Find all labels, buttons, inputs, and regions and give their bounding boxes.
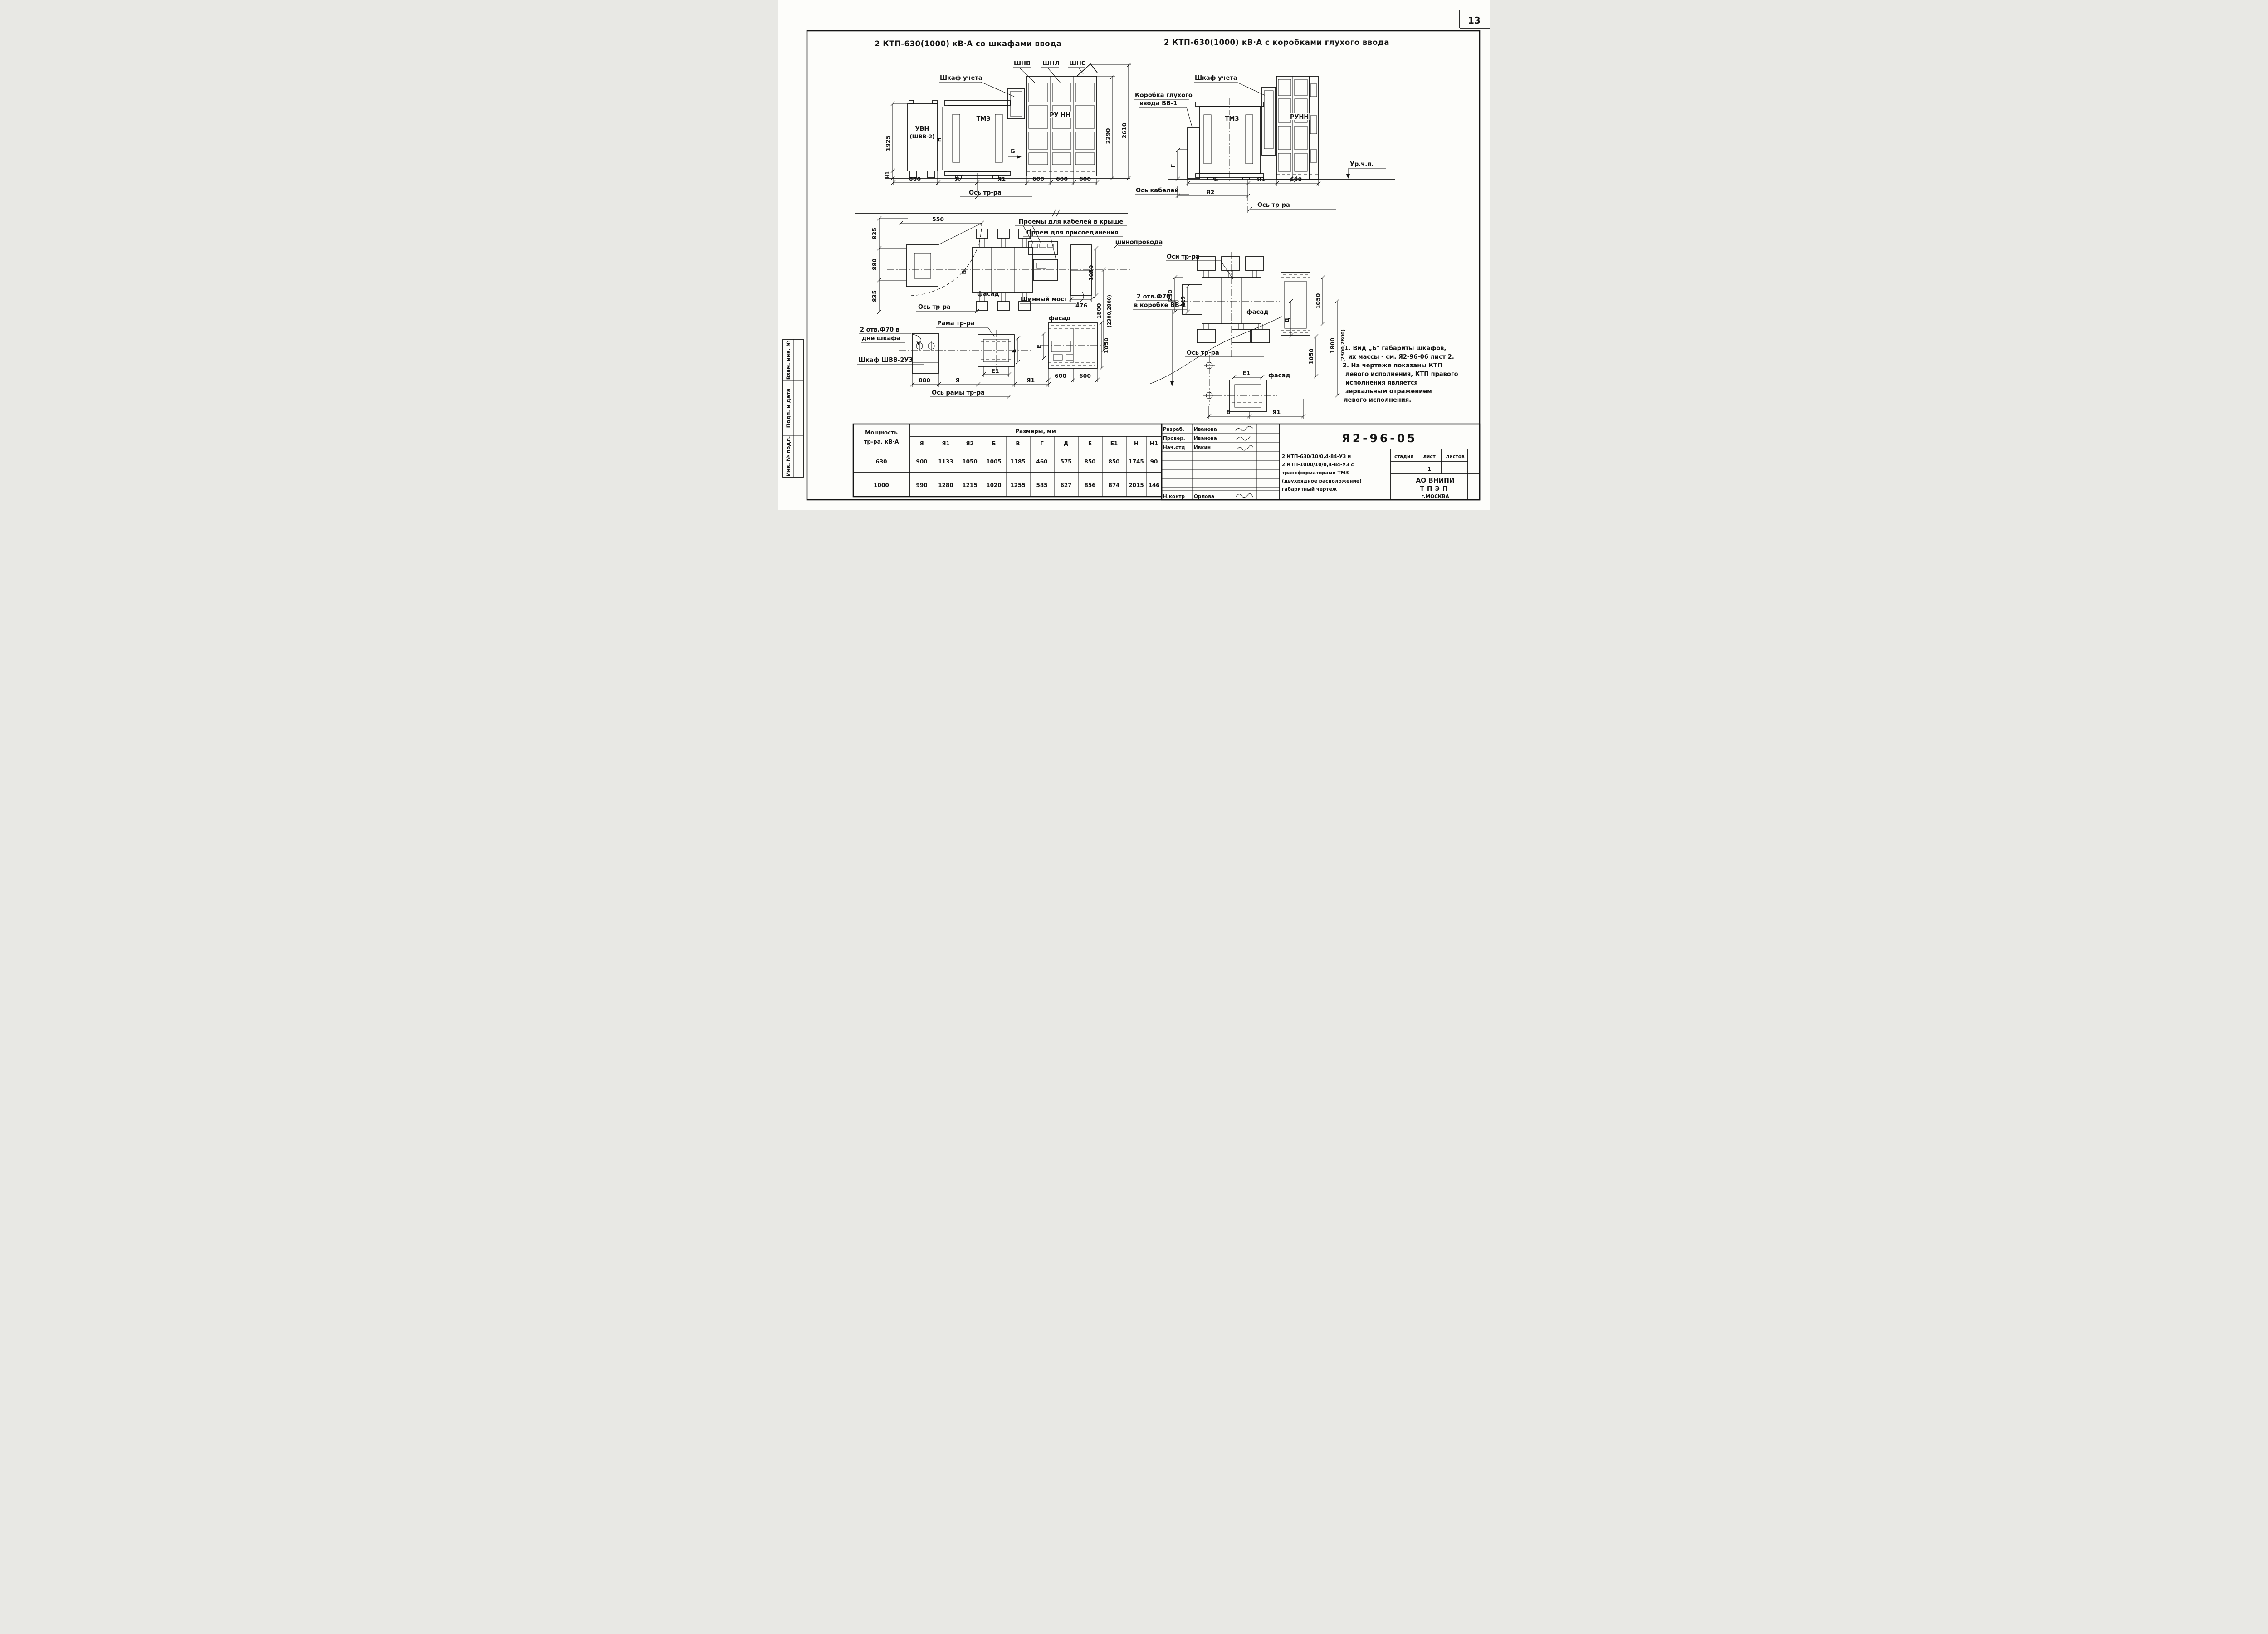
doc-desc-4: (двухрядное расположение) (1282, 478, 1362, 484)
doc-desc-1: 2 КТП-630/10/0,4-84-У3 и (1282, 454, 1351, 459)
dim-ya-elev: Я (955, 176, 959, 182)
drawing-canvas: 13 Взам. инв. № Подп. и дата Инв. № подл… (778, 0, 1490, 510)
runn-doors-left (1029, 83, 1095, 165)
note-line-5: исполнения является (1345, 380, 1418, 386)
note-line-3: 2. На чертеже показаны КТП (1343, 362, 1442, 369)
signatures (1236, 426, 1253, 498)
bus-bridge-label: Шинный мост (1021, 296, 1068, 303)
roof-cable-slots (1031, 244, 1053, 248)
dim-ya1-right-detail: Я1 (1272, 409, 1281, 415)
doc-desc-2: 2 КТП-1000/10/0,4-84-У3 с (1282, 462, 1354, 468)
col-ya1: Я1 (942, 440, 950, 447)
col-h1: Н1 (1150, 440, 1158, 447)
doc-desc-3: трансформаторами ТМЗ (1282, 470, 1349, 476)
holes-vv1-label-2: в коробке ВВ-1 (1134, 302, 1186, 309)
sheet-frame: 13 (807, 10, 1490, 500)
left-plan: 835 880 835 550 В Проемы для к (855, 210, 1163, 352)
dim-e: Е (1010, 349, 1017, 353)
radiator-stubs-top-right-plan (1197, 257, 1264, 278)
right-plan: Оси тр-ра 230 115 фасад Д 2 отв.Ф70 в ко… (1133, 181, 1346, 419)
row2-v4: 1255 (1010, 482, 1025, 488)
col-b: Б (992, 440, 996, 447)
busduct-opening-label-2: шинопровода (1115, 239, 1163, 246)
row2-v2: 1215 (962, 482, 977, 488)
holes-label-1: 2 отв.Ф70 в (860, 327, 899, 333)
roof-openings-label: Проемы для кабелей в крыше (1019, 219, 1124, 225)
title-block: Я2-96-05 Разраб. Иванова Провер. Иванова… (1162, 424, 1480, 500)
dim-ya2: Я2 (1206, 189, 1214, 195)
dim-v-letter: В (961, 270, 968, 274)
row2-v8: 874 (1108, 482, 1119, 488)
stamp-field-podp: Подп. и дата (785, 389, 792, 428)
fasad-label-left-plan: фасад (977, 291, 999, 298)
dim-880-elev: 880 (909, 176, 921, 182)
doc-desc-5: габаритный чертеж (1282, 487, 1337, 492)
row2-v10: 146 (1148, 482, 1159, 488)
panel-front-view: фасад 600 600 1050 Е (1036, 315, 1110, 382)
right-elevation: Коробка глухого ввода ВВ-1 ТМЗ Шкаф учет… (1134, 75, 1395, 211)
axis-transformer-left-elev: Ось тр-ра (969, 190, 1002, 196)
fasad-label-right-detail: фасад (1268, 372, 1290, 379)
dim-600-panel-2: 600 (1079, 372, 1091, 379)
tmz-label-left: ТМЗ (976, 116, 990, 122)
name-nkontr: Орлова (1194, 494, 1214, 499)
row1-v2: 1050 (962, 458, 977, 465)
sheet-header: лист (1423, 454, 1436, 459)
radiator-stubs-top-left-plan (976, 229, 1031, 247)
dim-1800-left: 1800 (1095, 303, 1102, 319)
dim-600-panel-1: 600 (1055, 372, 1066, 379)
shkaf-shvv-label: Шкаф ШВВ-2УЗ (858, 357, 913, 364)
shnl-label: ШНЛ (1042, 60, 1060, 67)
col-e: Е (1088, 440, 1092, 447)
role-razrab: Разраб. (1163, 427, 1184, 432)
dim-1925: 1925 (885, 136, 891, 151)
shnv-label: ШНВ (1014, 60, 1031, 67)
dim-2290: 2290 (1105, 128, 1111, 144)
dim-b-detail: Б (1226, 409, 1231, 415)
stamp-strip: Взам. инв. № Подп. и дата Инв. № подл. (783, 339, 803, 477)
uvn-label: УВН (915, 126, 929, 132)
org-name-2: ТПЭП (1420, 485, 1450, 493)
section-b-letter: Б (1011, 148, 1015, 155)
name-nachotd: Ивкин (1194, 445, 1211, 450)
row1-v4: 1185 (1010, 458, 1025, 465)
stamp-field-vzam: Взам. инв. № (785, 341, 792, 380)
row1-v3: 1005 (986, 458, 1001, 465)
row2-v0: 990 (916, 482, 927, 488)
dim-1800-right: 1800 (1329, 337, 1336, 353)
name-prover: Иванова (1194, 436, 1217, 441)
fasad-label-right-plan: фасад (1246, 309, 1269, 316)
dim-ya1-elev: Я1 (997, 176, 1006, 182)
dim-ya1-detail: Я1 (1026, 377, 1035, 384)
col-g: Г (1040, 440, 1044, 447)
dim-1050-left-plan: 1050 (1088, 265, 1095, 281)
dim-1050-right-plan: 1050 (1315, 293, 1321, 309)
dimensions-table: Мощность тр-ра, кВ·А Размеры, мм Я Я1 Я2… (853, 424, 1162, 497)
dim-600-r: 600 (1290, 176, 1302, 183)
axes-transformers-label: Оси тр-ра (1167, 254, 1200, 260)
dim-835-top: 835 (871, 228, 878, 239)
stage-header: стадия (1394, 454, 1413, 459)
table-header-power-1: Мощность (865, 429, 898, 436)
shkaf-ucheta-label-right: Шкаф учета (1195, 75, 1237, 82)
busduct-opening-label-1: Проем для присоединения (1026, 229, 1119, 236)
org-name-3: г.МОСКВА (1421, 494, 1449, 499)
axis-cables-label: Ось кабелей (1136, 187, 1178, 194)
role-prover: Провер. (1163, 436, 1185, 441)
row1-v8: 850 (1108, 458, 1119, 465)
row1-v9: 1745 (1129, 458, 1144, 465)
runn-label-left: РУ НН (1050, 112, 1070, 119)
dim-476: 476 (1075, 302, 1087, 309)
dim-ya1-elev-r: Я1 (1257, 176, 1265, 183)
runn-side-panels (1310, 84, 1317, 162)
row2-v5: 585 (1036, 482, 1047, 488)
col-ya: Я (919, 440, 924, 447)
row2-v7: 856 (1084, 482, 1095, 488)
dim-1050-panel: 1050 (1103, 337, 1110, 353)
note-line-6: зеркальным отражением (1345, 388, 1432, 395)
col-h: Н (1134, 440, 1139, 447)
floor-level-label: Ур.ч.п. (1350, 161, 1374, 168)
dim-b-elev: Б (1214, 176, 1218, 183)
holes-label-2: дне шкафа (862, 335, 901, 342)
name-razrab: Иванова (1194, 427, 1217, 432)
table-row-630: 630 900 1133 1050 1005 1185 460 575 850 … (875, 458, 1158, 465)
row1-v0: 900 (916, 458, 927, 465)
row1-v6: 575 (1060, 458, 1071, 465)
dim-600-2: 600 (1056, 176, 1068, 182)
holes-vv1-label-1: 2 отв.Ф70 (1137, 293, 1170, 300)
axis-transformer-right-plan: Ось тр-ра (1187, 350, 1219, 356)
dim-880-detail: 880 (919, 377, 930, 384)
table-header-sizes: Размеры, мм (1015, 428, 1056, 434)
rama-label: Рама тр-ра (937, 320, 975, 327)
dim-600-1: 600 (1032, 176, 1044, 182)
row2-v3: 1020 (986, 482, 1001, 488)
row2-v6: 627 (1060, 482, 1071, 488)
row1-v7: 850 (1084, 458, 1095, 465)
row1-v1: 1133 (938, 458, 953, 465)
dim-ya-detail: Я (955, 377, 960, 384)
sheets-header: листов (1446, 454, 1465, 459)
role-nachotd: Нач.отд (1163, 445, 1185, 450)
drawing-sheet: 13 Взам. инв. № Подп. и дата Инв. № подл… (778, 0, 1490, 510)
notes: 1. Вид „Б" габариты шкафов, их массы - с… (1343, 345, 1458, 404)
dim-1050-right-detail: 1050 (1308, 348, 1315, 364)
col-v: В (1016, 440, 1020, 447)
row2-v1: 1280 (938, 482, 953, 488)
korobka-label-2: ввода ВВ-1 (1139, 100, 1177, 107)
table-column-letters: Я Я1 Я2 Б В Г Д Е Е1 Н Н1 (919, 440, 1158, 447)
left-frame-detail: 2 отв.Ф70 в дне шкафа Шкаф ШВВ-2УЗ Рама … (857, 320, 1051, 399)
korobka-label-1: Коробка глухого (1135, 92, 1193, 99)
col-ya2: Я2 (966, 440, 974, 447)
dim-835-bottom: 835 (871, 290, 878, 302)
org-name-1: АО ВНИПИ (1416, 477, 1454, 484)
sheet-value: 1 (1427, 467, 1431, 472)
uvn-type-label: (ШВВ-2) (909, 133, 934, 140)
right-view-title: 2 КТП-630(1000) кВ·А с коробками глухого… (1164, 38, 1389, 47)
document-number: Я2-96-05 (1342, 432, 1417, 445)
role-nkontr: Н.контр (1163, 494, 1185, 499)
dim-880-plan: 880 (871, 259, 878, 270)
note-line-1: 1. Вид „Б" габариты шкафов, (1344, 345, 1446, 352)
dim-600-3: 600 (1079, 176, 1091, 182)
col-e1: Е1 (1110, 440, 1118, 447)
dim-e1-left: Е1 (991, 367, 999, 374)
col-d: Д (1064, 440, 1069, 447)
dim-h: Н (935, 137, 942, 142)
fasad-label-panel: фасад (1049, 315, 1071, 322)
axis-transformer-right-elev: Ось тр-ра (1257, 202, 1290, 209)
row1-v5: 460 (1036, 458, 1047, 465)
dim-h1: Н1 (885, 171, 890, 179)
note-line-2: их массы - см. Я2-96-06 лист 2. (1348, 354, 1454, 361)
left-elevation: УВН (ШВВ-2) ТМЗ РУ НН Шкаф учета ШНВ ШНЛ… (885, 60, 1131, 199)
tmz-label-right: ТМЗ (1225, 116, 1239, 122)
dim-g: Г (1169, 164, 1176, 168)
row2-power: 1000 (874, 482, 889, 488)
left-view-title: 2 КТП-630(1000) кВ·А со шкафами ввода (875, 39, 1062, 48)
table-header-power-2: тр-ра, кВ·А (864, 439, 899, 445)
shkaf-ucheta-label-left: Шкаф учета (940, 75, 982, 82)
note-line-4: левого исполнения, КТП правого (1345, 371, 1458, 378)
note-line-7: левого исполнения. (1344, 397, 1411, 404)
row1-v10: 90 (1150, 458, 1158, 465)
table-row-1000: 1000 990 1280 1215 1020 1255 585 627 856… (874, 482, 1159, 488)
dim-2610: 2610 (1121, 122, 1128, 138)
axis-transformer-left-plan: Ось тр-ра (918, 304, 951, 311)
stamp-field-inv: Инв. № подл. (785, 436, 792, 477)
dim-d-letter: Д (1283, 317, 1290, 322)
dim-e-panel: Е (1036, 345, 1042, 349)
radiator-stubs-bottom-right-plan (1197, 324, 1270, 343)
row2-v9: 2015 (1129, 482, 1144, 488)
dim-e1-right: Е1 (1242, 370, 1250, 376)
runn-label-right: РУНН (1290, 114, 1309, 121)
shns-label: ШНС (1069, 60, 1085, 67)
dim-550: 550 (932, 216, 944, 223)
axis-rama-label: Ось рамы тр-ра (932, 390, 985, 396)
page-number: 13 (1468, 15, 1481, 26)
dim-1800-alt-left: (2300,2800) (1107, 295, 1112, 327)
row1-power: 630 (875, 458, 887, 465)
